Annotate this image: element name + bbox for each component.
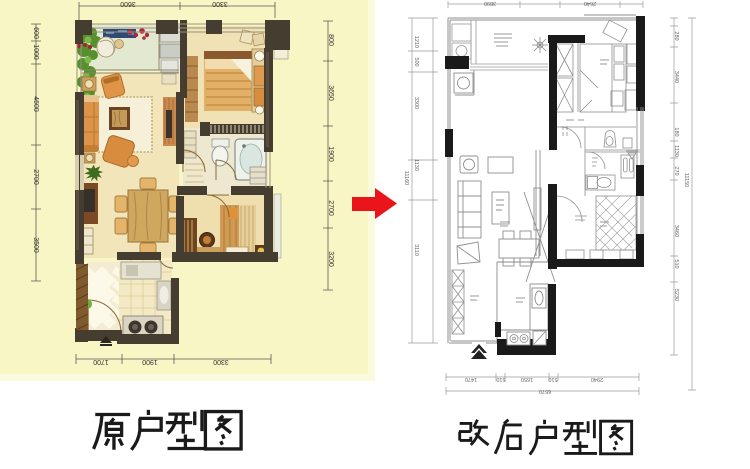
svg-text:510: 510 — [496, 376, 505, 382]
svg-text:1130: 1130 — [673, 145, 679, 157]
svg-text:3300: 3300 — [213, 358, 229, 365]
svg-text:3460: 3460 — [673, 225, 679, 237]
svg-text:2640: 2640 — [584, 0, 596, 6]
svg-text:3200: 3200 — [327, 251, 334, 267]
svg-text:280: 280 — [673, 31, 679, 40]
svg-text:1900: 1900 — [327, 146, 334, 162]
svg-text:1000: 1000 — [32, 44, 39, 60]
svg-text:3600: 3600 — [120, 0, 136, 7]
svg-text:4600: 4600 — [32, 96, 39, 112]
svg-text:3500: 3500 — [32, 237, 39, 253]
svg-text:5230: 5230 — [673, 289, 679, 301]
svg-text:2700: 2700 — [32, 169, 39, 185]
svg-text:800: 800 — [327, 34, 334, 46]
svg-text:510: 510 — [673, 259, 679, 268]
svg-text:2700: 2700 — [327, 200, 334, 216]
svg-text:600: 600 — [32, 27, 39, 39]
svg-text:1650: 1650 — [521, 376, 533, 382]
svg-text:1900: 1900 — [142, 358, 158, 365]
svg-text:11160: 11160 — [403, 171, 409, 185]
svg-text:270: 270 — [673, 166, 679, 175]
svg-text:3650: 3650 — [327, 85, 334, 101]
svg-text:3890: 3890 — [484, 0, 496, 6]
svg-text:11150: 11150 — [683, 173, 689, 187]
svg-text:6570: 6570 — [539, 388, 551, 394]
svg-text:3300: 3300 — [413, 97, 419, 109]
svg-text:2940: 2940 — [591, 376, 603, 382]
svg-text:3300: 3300 — [212, 0, 228, 7]
svg-text:1470: 1470 — [465, 376, 477, 382]
svg-text:510: 510 — [548, 376, 557, 382]
svg-text:1700: 1700 — [93, 358, 109, 365]
svg-text:3440: 3440 — [673, 71, 679, 83]
svg-text:180: 180 — [673, 127, 679, 136]
svg-text:3110: 3110 — [413, 244, 419, 256]
svg-text:1130: 1130 — [413, 159, 419, 171]
svg-text:1210: 1210 — [413, 36, 419, 48]
svg-text:500: 500 — [413, 57, 419, 66]
